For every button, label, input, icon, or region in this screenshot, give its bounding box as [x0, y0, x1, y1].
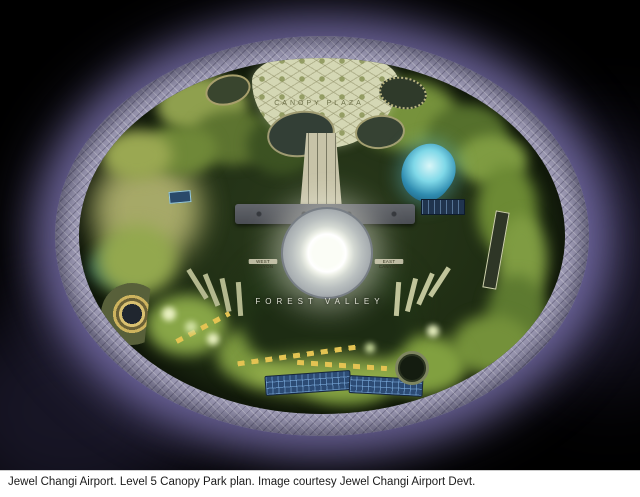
glowing-tree — [207, 333, 219, 345]
glowing-tree — [162, 307, 176, 321]
walkway — [300, 133, 342, 209]
label-canopy-plaza: CANOPY PLAZA — [249, 100, 389, 107]
label-forest-valley: FOREST VALLEY — [225, 297, 415, 306]
water-feature-rect — [169, 190, 192, 204]
glowing-tree — [365, 343, 375, 353]
label-east-canyon: EAST CANYON — [375, 259, 404, 264]
glowing-tree — [427, 325, 439, 337]
canyon-rib — [220, 278, 232, 312]
round-garden-feature — [395, 351, 429, 385]
plan-image: CANOPY PLAZA — [0, 0, 640, 470]
canyon-rib — [428, 266, 451, 297]
label-west-canyon: WEST CANYON — [249, 259, 278, 264]
glowing-tree — [185, 321, 197, 333]
caption-text: Jewel Changi Airport. Level 5 Canopy Par… — [0, 471, 640, 488]
figure-frame: CANOPY PLAZA — [0, 0, 640, 497]
caption-bar: Jewel Changi Airport. Level 5 Canopy Par… — [0, 470, 640, 497]
park-interior: CANOPY PLAZA — [79, 58, 565, 414]
rain-vortex — [281, 207, 373, 299]
navy-deck — [421, 199, 465, 215]
tree-cluster — [102, 130, 172, 180]
